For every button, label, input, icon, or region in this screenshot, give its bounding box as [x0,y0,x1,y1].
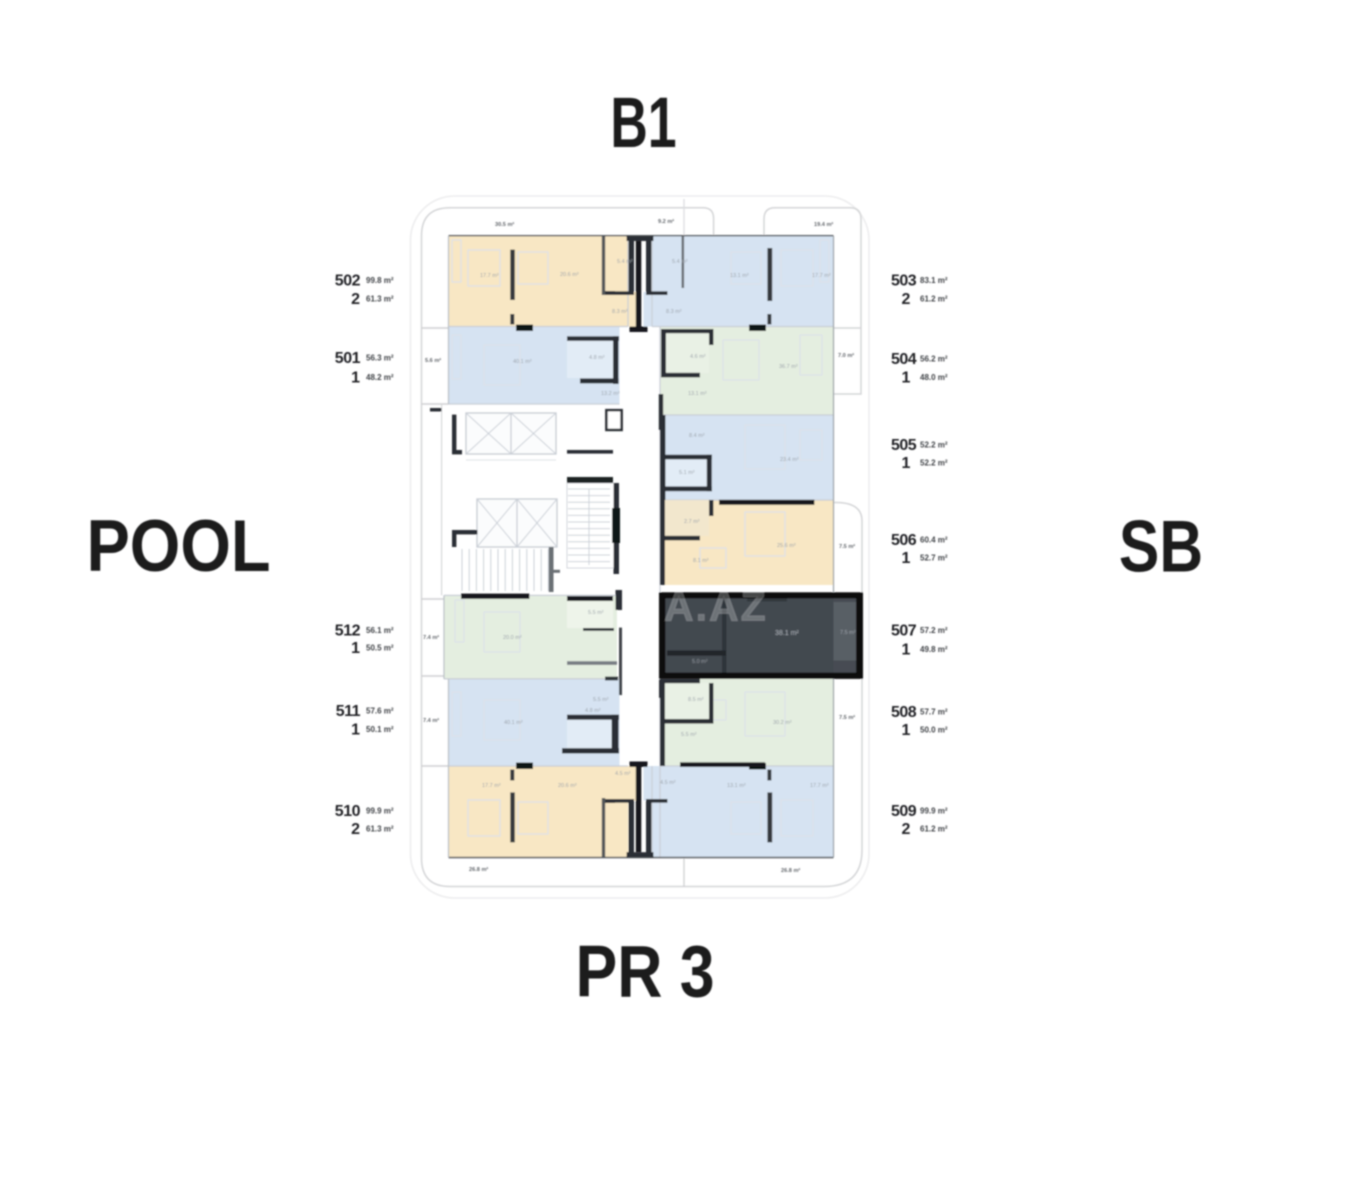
svg-text:503: 503 [891,273,917,290]
svg-text:13.2 m²: 13.2 m² [601,391,620,397]
svg-text:2: 2 [351,291,360,308]
svg-text:7.5 m²: 7.5 m² [839,714,855,721]
svg-text:13.1 m²: 13.1 m² [727,783,746,789]
svg-text:17.7 m²: 17.7 m² [812,273,831,279]
svg-text:5.4 m²: 5.4 m² [672,259,688,265]
svg-text:61.2 m²: 61.2 m² [920,825,948,834]
svg-text:99.8 m²: 99.8 m² [366,276,394,285]
svg-text:17.7 m²: 17.7 m² [482,783,501,789]
svg-text:5.5 m²: 5.5 m² [588,610,604,616]
svg-text:512: 512 [335,623,361,640]
svg-text:57.6 m²: 57.6 m² [366,707,394,716]
svg-text:4.8 m²: 4.8 m² [589,355,605,361]
svg-text:507: 507 [891,623,917,640]
svg-text:56.1 m²: 56.1 m² [366,626,394,635]
svg-text:13.1 m²: 13.1 m² [730,273,749,279]
svg-text:1: 1 [351,722,360,739]
svg-text:504: 504 [891,351,917,368]
svg-text:48.0 m²: 48.0 m² [920,373,948,382]
svg-text:20.6 m²: 20.6 m² [558,783,577,789]
svg-text:7.5 m²: 7.5 m² [840,630,856,636]
svg-text:A.AZ: A.AZ [664,584,768,630]
svg-text:5.5 m²: 5.5 m² [681,732,697,738]
svg-text:30.5 m²: 30.5 m² [495,221,514,228]
svg-text:508: 508 [891,704,917,721]
svg-text:57.7 m²: 57.7 m² [920,708,948,717]
svg-text:510: 510 [335,803,361,820]
svg-text:2: 2 [351,821,360,838]
svg-text:50.1 m²: 50.1 m² [366,725,394,734]
svg-text:17.7 m²: 17.7 m² [480,273,499,279]
svg-text:99.9 m²: 99.9 m² [920,807,948,816]
svg-text:POOL: POOL [86,504,270,586]
svg-text:57.2 m²: 57.2 m² [920,626,948,635]
svg-text:1: 1 [902,722,911,739]
svg-text:20.0 m²: 20.0 m² [503,635,522,641]
svg-text:7.4 m²: 7.4 m² [423,717,439,724]
svg-text:PR 3: PR 3 [575,931,714,1013]
svg-text:20.6 m²: 20.6 m² [560,272,579,278]
svg-text:99.9 m²: 99.9 m² [366,807,394,816]
svg-text:8.3 m²: 8.3 m² [612,309,628,315]
svg-text:52.7 m²: 52.7 m² [920,554,948,563]
svg-text:36.7 m²: 36.7 m² [779,364,798,370]
svg-text:38.1 m²: 38.1 m² [775,630,799,637]
svg-text:7.0 m²: 7.0 m² [838,352,854,359]
svg-text:7.4 m²: 7.4 m² [423,634,439,641]
svg-text:49.8 m²: 49.8 m² [920,645,948,654]
svg-text:SB: SB [1119,506,1203,588]
svg-text:505: 505 [891,437,917,454]
svg-text:511: 511 [336,703,361,720]
svg-text:61.3 m²: 61.3 m² [366,825,394,834]
svg-text:1: 1 [902,550,911,567]
svg-text:19.4 m²: 19.4 m² [814,221,833,228]
svg-text:1: 1 [351,640,360,657]
svg-text:1: 1 [351,370,360,387]
svg-text:52.2 m²: 52.2 m² [920,459,948,468]
svg-text:83.1 m²: 83.1 m² [920,276,948,285]
svg-text:13.1 m²: 13.1 m² [688,391,707,397]
svg-text:40.1 m²: 40.1 m² [513,359,532,365]
svg-text:509: 509 [891,803,917,820]
svg-text:2.7 m²: 2.7 m² [684,519,700,525]
svg-text:52.2 m²: 52.2 m² [920,441,948,450]
svg-text:17.7 m²: 17.7 m² [810,783,829,789]
svg-text:501: 501 [335,350,361,367]
svg-text:5.5 m²: 5.5 m² [593,697,609,703]
svg-text:4.5 m²: 4.5 m² [660,780,676,786]
svg-text:4.6 m²: 4.6 m² [690,354,706,360]
svg-text:506: 506 [891,532,917,549]
svg-text:48.2 m²: 48.2 m² [366,373,394,382]
svg-text:5.6 m²: 5.6 m² [425,357,441,364]
svg-text:4.5 m²: 4.5 m² [615,771,631,777]
svg-text:1: 1 [902,642,911,659]
svg-text:8.5 m²: 8.5 m² [688,697,704,703]
svg-text:4.8 m²: 4.8 m² [585,708,601,714]
svg-text:8.3 m²: 8.3 m² [666,309,682,315]
svg-text:8.4 m²: 8.4 m² [689,433,705,439]
svg-text:30.2 m²: 30.2 m² [773,720,792,726]
svg-text:50.5 m²: 50.5 m² [366,644,394,653]
svg-text:25.6 m²: 25.6 m² [777,543,796,549]
svg-text:5.4 m²: 5.4 m² [617,259,633,265]
svg-text:56.3 m²: 56.3 m² [366,354,394,363]
svg-text:1: 1 [902,455,911,472]
svg-text:60.4 m²: 60.4 m² [920,536,948,545]
svg-text:B1: B1 [610,84,676,163]
svg-text:502: 502 [335,273,361,290]
svg-text:40.1 m²: 40.1 m² [504,720,523,726]
svg-text:23.4 m²: 23.4 m² [780,457,799,463]
svg-text:5.1 m²: 5.1 m² [679,470,695,476]
svg-text:5.0 m²: 5.0 m² [692,659,708,665]
svg-text:2: 2 [902,821,911,838]
svg-text:2: 2 [902,291,911,308]
svg-text:26.8 m²: 26.8 m² [781,867,800,874]
svg-text:26.8 m²: 26.8 m² [469,866,488,873]
svg-text:61.3 m²: 61.3 m² [366,295,394,304]
svg-text:50.0 m²: 50.0 m² [920,726,948,735]
svg-text:61.2 m²: 61.2 m² [920,295,948,304]
svg-text:9.2 m²: 9.2 m² [658,218,674,225]
svg-text:7.5 m²: 7.5 m² [839,543,855,550]
svg-text:8.1 m²: 8.1 m² [693,558,709,564]
svg-text:56.2 m²: 56.2 m² [920,355,948,364]
svg-text:1: 1 [902,370,911,387]
